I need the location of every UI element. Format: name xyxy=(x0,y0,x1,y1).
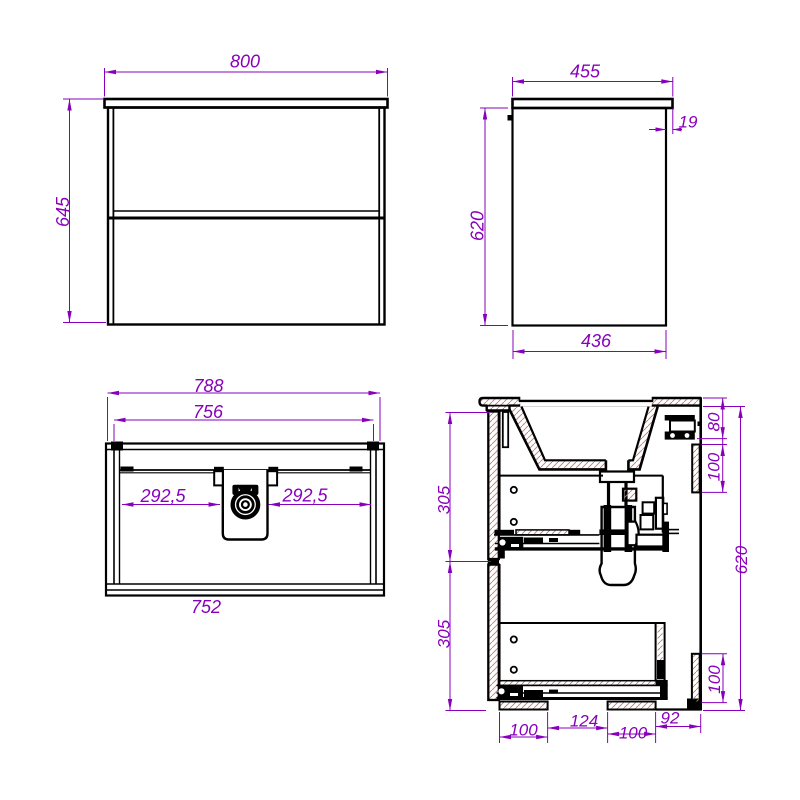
svg-text:752: 752 xyxy=(191,597,221,617)
svg-text:100: 100 xyxy=(619,724,648,743)
svg-text:92: 92 xyxy=(661,709,680,728)
svg-text:292,5: 292,5 xyxy=(281,486,328,506)
svg-text:620: 620 xyxy=(468,211,488,241)
svg-text:800: 800 xyxy=(230,52,260,72)
svg-text:305: 305 xyxy=(434,485,453,514)
svg-text:455: 455 xyxy=(570,62,601,82)
svg-text:436: 436 xyxy=(581,331,612,351)
svg-text:292,5: 292,5 xyxy=(139,486,186,506)
svg-text:100: 100 xyxy=(704,452,723,481)
svg-text:19: 19 xyxy=(679,113,698,132)
svg-text:756: 756 xyxy=(193,402,224,422)
svg-text:100: 100 xyxy=(705,665,724,694)
svg-text:80: 80 xyxy=(705,412,724,431)
svg-text:645: 645 xyxy=(53,196,73,227)
svg-text:305: 305 xyxy=(434,619,453,648)
svg-text:124: 124 xyxy=(570,712,598,731)
svg-text:100: 100 xyxy=(509,721,538,740)
svg-text:788: 788 xyxy=(193,376,223,396)
svg-text:620: 620 xyxy=(732,545,751,574)
